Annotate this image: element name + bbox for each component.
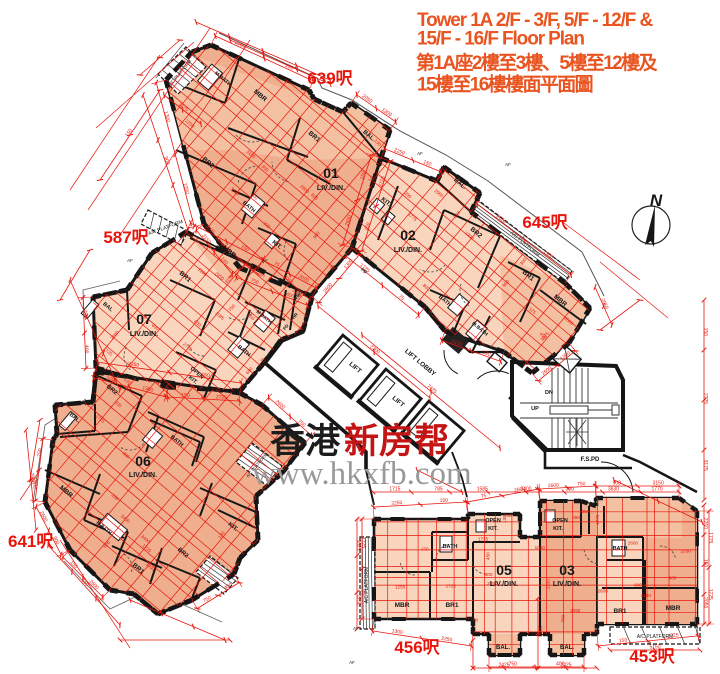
svg-text:OPEN: OPEN — [552, 518, 568, 524]
svg-text:450: 450 — [486, 552, 491, 560]
svg-text:第1A座2樓至3樓、5樓至12樓及: 第1A座2樓至3樓、5樓至12樓及 — [416, 51, 659, 74]
svg-text:150: 150 — [702, 559, 708, 568]
svg-text:300: 300 — [566, 487, 575, 493]
svg-text:2060: 2060 — [570, 608, 581, 613]
svg-text:AF: AF — [353, 626, 359, 631]
svg-text:AF: AF — [505, 162, 511, 167]
svg-text:2725: 2725 — [702, 393, 708, 404]
svg-text:2725: 2725 — [667, 632, 679, 639]
svg-text:3175: 3175 — [702, 460, 708, 471]
svg-text:150: 150 — [440, 498, 449, 504]
svg-text:AF: AF — [127, 258, 133, 263]
svg-text:www.hkxfb.com: www.hkxfb.com — [252, 456, 472, 492]
svg-text:07: 07 — [136, 311, 152, 327]
svg-text:DN: DN — [545, 390, 553, 396]
svg-text:750: 750 — [561, 614, 566, 622]
svg-text:BR1: BR1 — [613, 608, 626, 615]
svg-text:645呎: 645呎 — [522, 213, 568, 232]
svg-text:06: 06 — [135, 453, 151, 469]
svg-text:N: N — [650, 191, 663, 210]
svg-text:2600: 2600 — [548, 482, 560, 489]
svg-text:150: 150 — [619, 637, 628, 644]
svg-text:2050: 2050 — [702, 597, 708, 608]
svg-text:15樓至16樓樓面平面圖: 15樓至16樓樓面平面圖 — [417, 73, 593, 96]
svg-text:2000: 2000 — [536, 626, 542, 637]
svg-text:AF: AF — [262, 258, 268, 263]
svg-text:LIV./DIN.: LIV./DIN. — [394, 247, 422, 254]
svg-text:BAL.: BAL. — [496, 645, 510, 651]
svg-text:1585: 1585 — [477, 487, 488, 493]
svg-text:MBR: MBR — [395, 602, 410, 609]
svg-text:A/C PLATFORM: A/C PLATFORM — [364, 567, 370, 604]
svg-text:639呎: 639呎 — [307, 69, 353, 88]
svg-text:587呎: 587呎 — [103, 228, 149, 247]
svg-text:2250: 2250 — [681, 549, 692, 554]
svg-text:05: 05 — [496, 562, 512, 578]
svg-text:15/F - 16/F Floor Plan: 15/F - 16/F Floor Plan — [417, 29, 584, 50]
svg-text:2250: 2250 — [702, 518, 708, 529]
svg-text:3025: 3025 — [355, 539, 361, 550]
svg-text:UP: UP — [531, 406, 539, 412]
svg-text:130: 130 — [421, 547, 429, 552]
svg-text:OPEN: OPEN — [485, 518, 501, 524]
svg-text:AF: AF — [349, 660, 355, 665]
svg-text:03: 03 — [559, 562, 575, 578]
svg-text:456呎: 456呎 — [394, 638, 440, 657]
svg-text:453呎: 453呎 — [629, 647, 675, 666]
svg-text:1250: 1250 — [355, 594, 361, 605]
svg-text:1725: 1725 — [446, 584, 457, 589]
svg-text:LIV./DIN.: LIV./DIN. — [553, 581, 581, 588]
svg-text:2725: 2725 — [216, 394, 228, 401]
svg-text:3630: 3630 — [608, 487, 619, 493]
svg-text:2250: 2250 — [391, 500, 403, 507]
svg-text:AF: AF — [417, 151, 423, 156]
svg-text:KIT.: KIT. — [488, 526, 498, 532]
svg-text:1770: 1770 — [652, 487, 663, 493]
svg-text:690: 690 — [572, 515, 580, 520]
svg-text:2600: 2600 — [597, 589, 608, 594]
svg-text:150: 150 — [181, 392, 190, 398]
svg-text:MBR: MBR — [666, 605, 681, 612]
svg-text:1775: 1775 — [707, 532, 713, 543]
svg-text:750: 750 — [509, 662, 518, 668]
svg-text:900: 900 — [669, 576, 677, 581]
svg-text:02: 02 — [400, 227, 416, 243]
svg-text:LIV./DIN.: LIV./DIN. — [490, 581, 518, 588]
svg-text:LIV./DIN.: LIV./DIN. — [130, 331, 158, 338]
svg-text:150: 150 — [702, 328, 708, 337]
svg-text:2425: 2425 — [498, 663, 509, 669]
svg-text:2425: 2425 — [560, 663, 571, 669]
svg-text:1250: 1250 — [395, 585, 406, 590]
svg-text:750: 750 — [577, 481, 586, 487]
svg-text:2250: 2250 — [546, 579, 551, 590]
svg-text:800: 800 — [634, 582, 642, 587]
svg-text:750: 750 — [37, 448, 44, 457]
svg-text:LIV./DIN.: LIV./DIN. — [129, 472, 157, 479]
svg-text:641呎: 641呎 — [8, 532, 54, 551]
svg-text:3150: 3150 — [641, 593, 652, 598]
svg-text:BATH: BATH — [443, 544, 458, 550]
svg-text:2600: 2600 — [628, 541, 639, 546]
svg-text:BATH: BATH — [613, 546, 628, 552]
svg-text:KIT.: KIT. — [553, 526, 563, 532]
svg-text:1250: 1250 — [579, 509, 590, 514]
svg-text:F.S.PD: F.S.PD — [581, 457, 600, 463]
svg-text:BAL.: BAL. — [560, 645, 574, 651]
svg-text:400: 400 — [83, 345, 89, 354]
svg-text:1775: 1775 — [595, 514, 600, 525]
svg-text:3400: 3400 — [520, 487, 531, 493]
svg-text:1050: 1050 — [535, 545, 546, 550]
svg-text:BR1: BR1 — [445, 602, 458, 609]
svg-text:LIV./DIN.: LIV./DIN. — [317, 185, 345, 192]
svg-text:01: 01 — [323, 165, 339, 181]
svg-text:1725: 1725 — [478, 537, 489, 542]
svg-text:400: 400 — [485, 572, 493, 577]
